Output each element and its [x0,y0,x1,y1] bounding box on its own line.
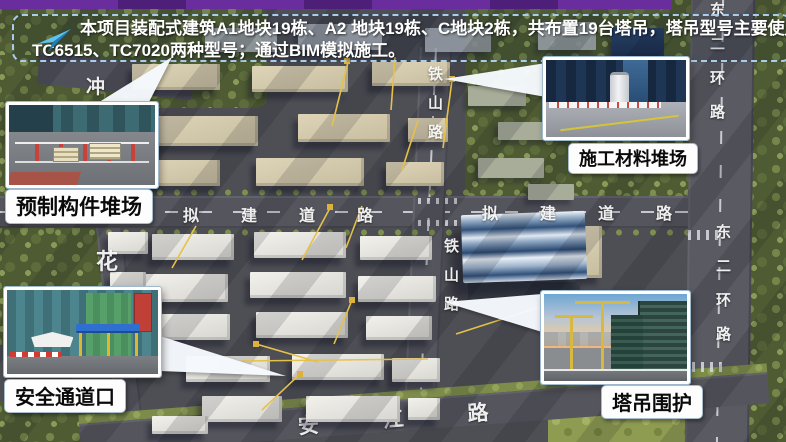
callout-label-material-yard: 施工材料堆场 [568,143,698,174]
send-arrow-icon [36,27,72,53]
building-block [150,314,230,340]
building-block [152,234,234,260]
building-block [152,416,208,434]
building-block [478,158,544,178]
building-block [186,356,270,382]
crosswalk-2 [418,220,458,226]
building-block [528,184,574,200]
inset-photo-crane-enclosure [541,291,690,384]
callout-label-precast-yard: 预制构件堆场 [5,189,153,224]
building-block [202,396,282,422]
building-block [408,118,448,142]
building-block [306,396,400,422]
building-block [392,358,440,382]
building-block [250,272,346,298]
inset-photo-safety-entrance [4,287,161,377]
slide: 安江路 铁山路 铁山路 东二环路 东二环路 拟建道路 拟建道路 花 冲 本项目装… [0,0,786,442]
building-block [150,116,258,146]
building-block [256,312,348,338]
building-block [408,398,440,420]
crosswalk-1 [418,198,458,204]
crosswalk-3 [688,230,718,240]
building-block [298,114,390,142]
building-block [468,86,526,106]
building-block [360,236,432,260]
building-block [254,232,346,258]
building-block [256,158,364,186]
building-block [252,66,348,92]
banner-text-line1: 本项目装配式建筑A1地块19栋、A2 地块19栋、C地块2栋，共布置19台塔吊，… [24,18,782,40]
callout-label-crane-enclosure: 塔吊围护 [601,385,703,419]
building-block [366,316,432,340]
building-block [372,62,450,86]
header-banner: 本项目装配式建筑A1地块19栋、A2 地块19栋、C地块2栋，共布置19台塔吊，… [12,14,786,62]
building-block [292,354,384,380]
big-blue-building [461,211,587,283]
building-block [132,64,220,90]
building-block [108,232,148,254]
crosswalk-4 [692,362,722,372]
building-block [386,162,444,186]
callout-label-safety-entrance: 安全通道口 [4,379,126,413]
building-block [358,276,436,302]
slide-accent-bar [0,0,672,9]
inset-photo-material-yard [543,57,689,140]
inset-photo-precast-yard [6,102,158,188]
